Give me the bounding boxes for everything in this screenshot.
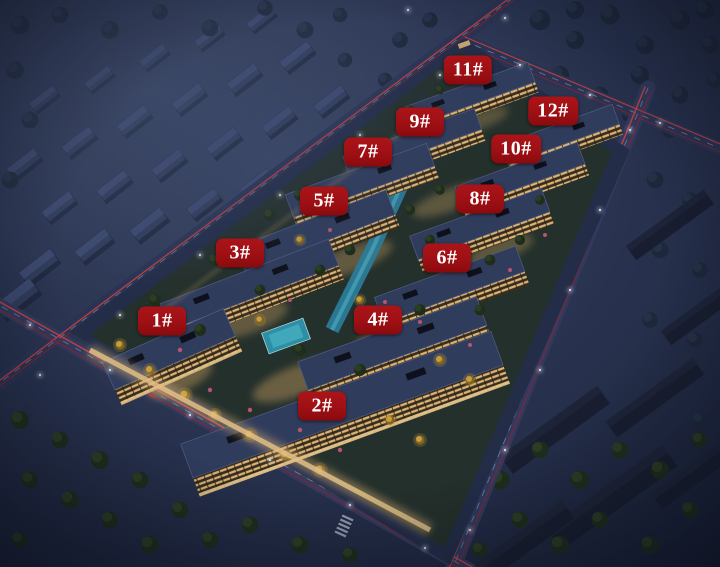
- building-marker-3[interactable]: 3#: [216, 239, 264, 268]
- building-marker-11[interactable]: 11#: [444, 56, 492, 85]
- building-marker-7[interactable]: 7#: [344, 138, 392, 167]
- aerial-site-view: 1#2#3#4#5#6#7#8#9#10#11#12#: [0, 0, 720, 567]
- building-marker-5[interactable]: 5#: [300, 187, 348, 216]
- building-marker-2[interactable]: 2#: [298, 392, 346, 421]
- building-marker-6[interactable]: 6#: [423, 244, 471, 273]
- building-marker-12[interactable]: 12#: [528, 97, 578, 126]
- building-marker-9[interactable]: 9#: [396, 108, 444, 137]
- building-marker-1[interactable]: 1#: [138, 307, 186, 336]
- building-marker-10[interactable]: 10#: [491, 135, 541, 164]
- building-marker-8[interactable]: 8#: [456, 185, 504, 214]
- building-marker-4[interactable]: 4#: [354, 306, 402, 335]
- marker-layer: 1#2#3#4#5#6#7#8#9#10#11#12#: [0, 0, 720, 567]
